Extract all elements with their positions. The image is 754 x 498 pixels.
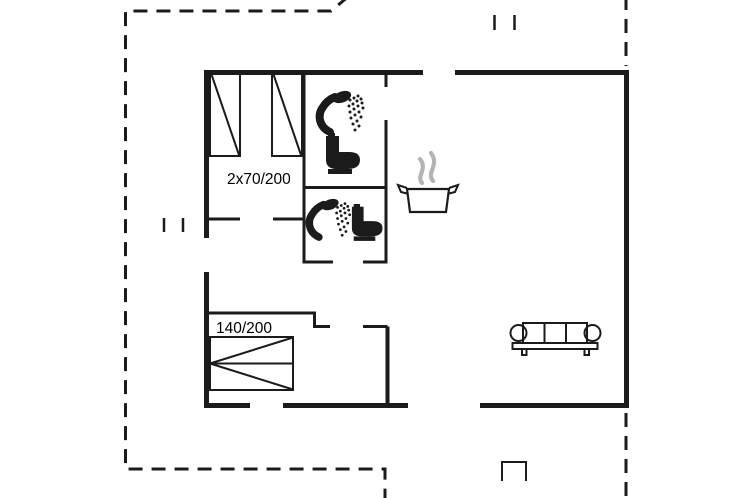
floor-plan-drawing: 2x70/200 140/200 xyxy=(0,0,754,498)
window-marks-icon xyxy=(495,15,515,30)
single-bed-icon xyxy=(210,72,240,156)
shower-icon xyxy=(309,197,351,237)
toilet-icon xyxy=(326,133,360,174)
window-marks-icon xyxy=(164,218,183,232)
label-double-bed: 140/200 xyxy=(216,320,272,337)
shower-icon xyxy=(320,89,365,132)
exterior-walls xyxy=(204,70,629,408)
label-single-beds: 2x70/200 xyxy=(227,171,291,188)
sofa-icon xyxy=(511,323,601,355)
cooking-pot-icon xyxy=(398,185,458,212)
porch-step-icon xyxy=(502,462,526,481)
single-bed-icon xyxy=(272,72,302,156)
steam-icon xyxy=(420,153,434,183)
floor-plan: 2x70/200 140/200 xyxy=(0,0,754,498)
double-bed-icon xyxy=(210,337,293,390)
toilet-icon xyxy=(352,204,383,241)
